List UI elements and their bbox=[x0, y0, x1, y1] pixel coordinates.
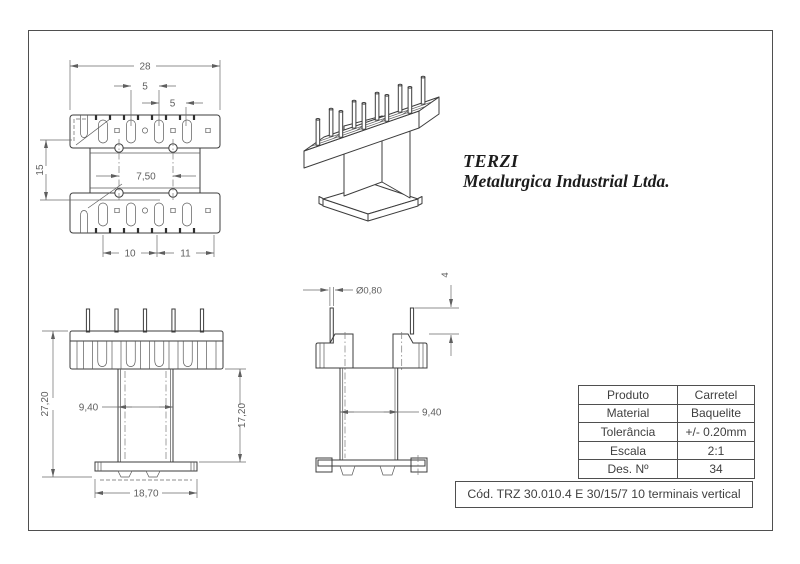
dim-overall-height: 27,20 bbox=[40, 391, 51, 416]
title-block-value: Baquelite bbox=[678, 404, 755, 423]
dim-core-depth: 9,40 bbox=[422, 408, 442, 419]
title-block-row: Tolerância +/- 0.20mm bbox=[579, 423, 755, 442]
dim-pin-pitch-right: 5 bbox=[170, 99, 176, 110]
dim-hole-spacing: 7,50 bbox=[136, 172, 156, 183]
dim-body-height: 17,20 bbox=[237, 403, 248, 428]
title-block-value: 34 bbox=[678, 460, 755, 479]
title-block-label: Tolerância bbox=[579, 423, 678, 442]
title-block-row: Material Baquelite bbox=[579, 404, 755, 423]
title-block-label: Escala bbox=[579, 441, 678, 460]
dim-pin-diameter: Ø0,80 bbox=[356, 286, 382, 297]
dim-base-width: 18,70 bbox=[133, 489, 158, 500]
title-block-label: Produto bbox=[579, 386, 678, 405]
title-block-value: 2:1 bbox=[678, 441, 755, 460]
title-block-label: Material bbox=[579, 404, 678, 423]
side-view: Ø0,80 4 9,40 bbox=[273, 263, 488, 498]
front-view: 27,20 9,40 17,20 18,70 bbox=[32, 293, 267, 518]
dim-terminal-row-right: 11 bbox=[180, 249, 191, 260]
drawing-code-caption: Cód. TRZ 30.010.4 E 30/15/7 10 terminais… bbox=[455, 481, 753, 508]
dim-core-width: 9,40 bbox=[79, 403, 99, 414]
title-block-value: Carretel bbox=[678, 386, 755, 405]
top-view: 28 5 5 15 7,50 10 11 bbox=[30, 46, 262, 272]
title-block-row: Des. Nº 34 bbox=[579, 460, 755, 479]
dim-overall-width: 28 bbox=[139, 62, 151, 73]
title-block-label: Des. Nº bbox=[579, 460, 678, 479]
drawing-sheet: 28 5 5 15 7,50 10 11 bbox=[0, 0, 800, 564]
dim-flange-window: 15 bbox=[35, 164, 46, 176]
isometric-view bbox=[276, 56, 466, 244]
dim-terminal-row-left: 10 bbox=[124, 249, 136, 260]
title-block: Produto Carretel Material Baquelite Tole… bbox=[578, 385, 755, 479]
title-block-row: Produto Carretel bbox=[579, 386, 755, 405]
dim-pin-protrusion: 4 bbox=[440, 272, 451, 277]
title-block-row: Escala 2:1 bbox=[579, 441, 755, 460]
company-subtitle: Metalurgica Industrial Ltda. bbox=[463, 171, 670, 192]
company-name: TERZI bbox=[463, 151, 670, 171]
title-block-value: +/- 0.20mm bbox=[678, 423, 755, 442]
company-block: TERZI Metalurgica Industrial Ltda. bbox=[463, 151, 670, 192]
dim-pin-pitch-left: 5 bbox=[142, 82, 148, 93]
